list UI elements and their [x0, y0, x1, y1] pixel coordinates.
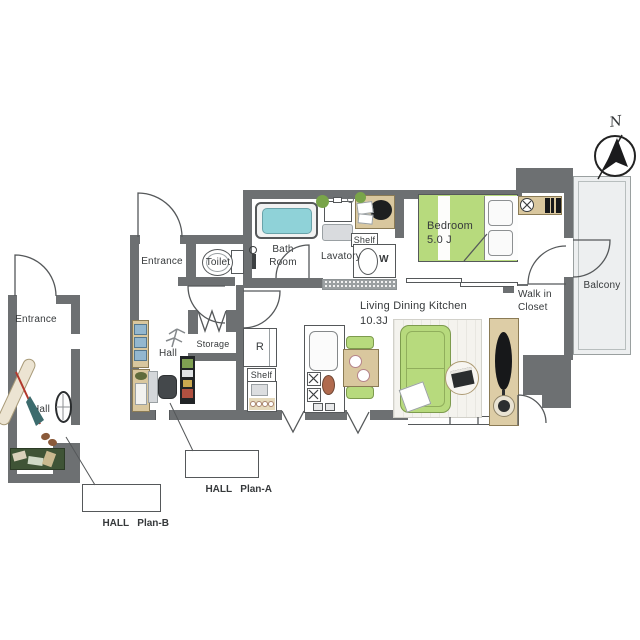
- balcony-door-swing: [573, 240, 610, 277]
- stove-x-icon: [309, 390, 318, 399]
- wic-door-swing: [528, 246, 566, 284]
- corner-door-swing: [518, 395, 546, 425]
- wheel-spokes: [56, 394, 70, 420]
- vent-x-icon: [523, 201, 531, 209]
- awning-window: [282, 411, 304, 432]
- floor-plan-canvas: Shelf W Walk in Closet: [0, 0, 640, 640]
- coat-stand-icon: [166, 329, 185, 347]
- entrance-door-swing: [138, 193, 182, 237]
- bed-fold-line: [464, 234, 487, 261]
- awning-window: [347, 412, 369, 433]
- window-ticks: [450, 417, 478, 424]
- leader-line-plan-b: [66, 437, 95, 485]
- hall-door-swing: [243, 291, 280, 328]
- bath-door-swing: [276, 245, 309, 278]
- ski-icon: [26, 396, 44, 426]
- toilet-door-swing: [188, 286, 225, 323]
- planb-entrance-door-swing: [15, 255, 56, 296]
- leader-line-plan-a: [170, 403, 193, 451]
- compass-arrowhead-icon: [603, 138, 628, 171]
- door-swing-overlay: [0, 0, 640, 640]
- compass-arrow: [598, 135, 628, 179]
- stove-x-icon: [309, 374, 318, 383]
- planb-gear-icons: [16, 372, 70, 426]
